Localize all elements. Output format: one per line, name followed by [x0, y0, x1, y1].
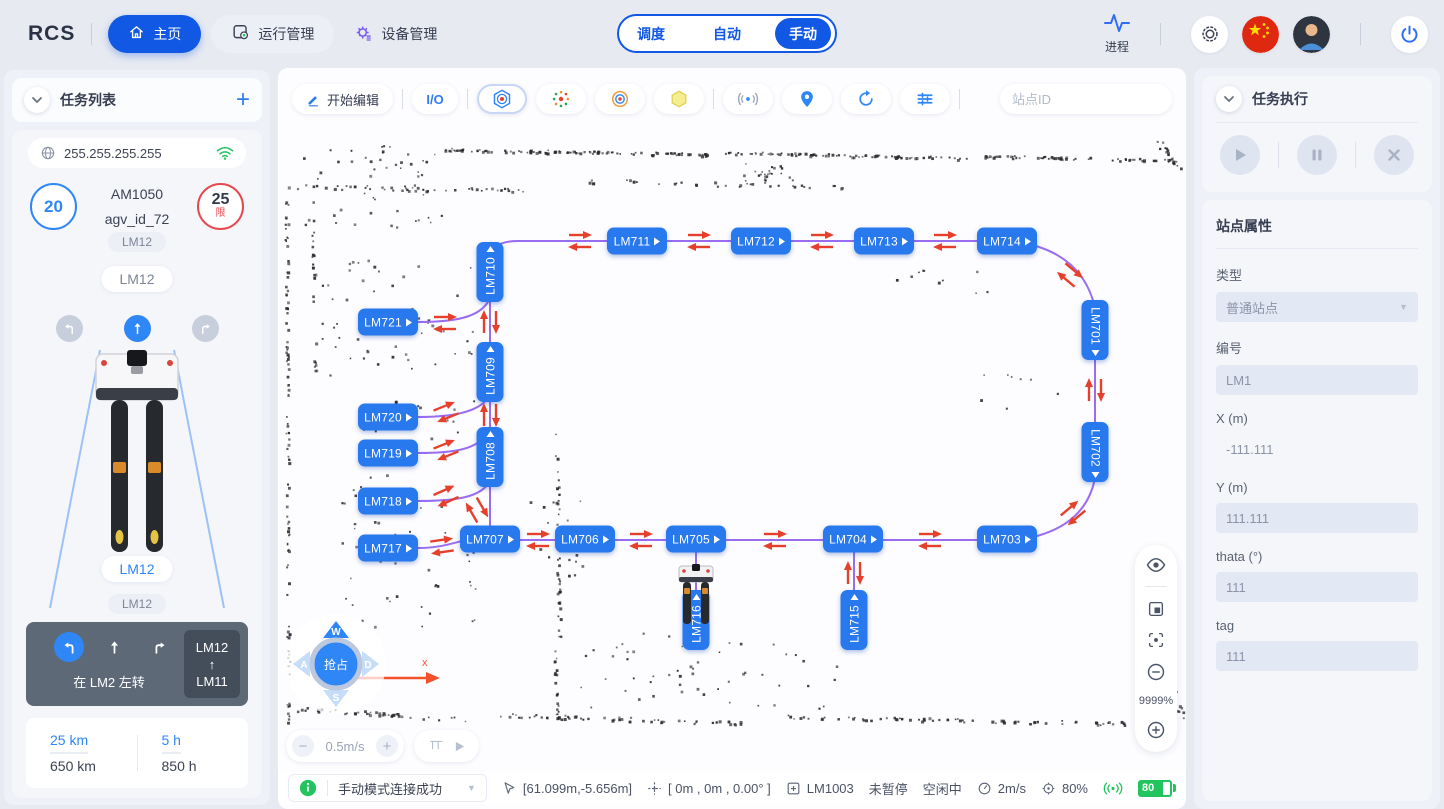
station-badge[interactable]: LM720	[358, 404, 418, 431]
station-badge[interactable]: LM702	[1082, 422, 1109, 482]
tag-label: tag	[1216, 618, 1418, 633]
battery-indicator: 80	[1138, 780, 1176, 797]
y-field[interactable]: 111.111	[1216, 503, 1418, 533]
avatar	[1293, 16, 1330, 53]
sliders-icon	[915, 89, 935, 109]
hexagon-scan-icon	[491, 88, 513, 110]
station-properties: 站点属性 类型 普通站点 ▼ 编号 LM1 X (m) -111.111 Y (…	[1202, 200, 1432, 801]
station-search-input[interactable]	[1012, 92, 1186, 107]
globe-icon	[40, 145, 56, 161]
station-badge[interactable]: LM712	[731, 228, 791, 255]
theta-label: thata (°)	[1216, 549, 1418, 564]
play-icon	[454, 741, 465, 752]
turn-indicators	[12, 315, 262, 342]
tab-manual[interactable]: 手动	[775, 18, 831, 49]
station-layer-button[interactable]	[477, 84, 527, 114]
theta-field[interactable]: 111	[1216, 572, 1418, 602]
play-task-button[interactable]	[1220, 135, 1260, 175]
station-badge[interactable]: LM711	[607, 228, 667, 255]
theme-toggle[interactable]	[1191, 16, 1228, 53]
nav-operations[interactable]: 运行管理	[211, 15, 334, 53]
user-avatar[interactable]	[1293, 16, 1330, 53]
status-bar: 手动模式连接成功 ▼ [61.099m,-5.656m] [ 0m , 0m ,…	[278, 771, 1186, 805]
collapse-button[interactable]	[24, 87, 50, 113]
station-chip: LM12	[108, 594, 166, 614]
cursor-coords: [61.099m,-5.656m]	[502, 781, 632, 796]
power-icon	[1399, 24, 1420, 45]
locate-button[interactable]	[782, 84, 832, 114]
mode-tabs: 调度 自动 手动	[617, 14, 837, 53]
x-label: X (m)	[1216, 411, 1418, 426]
agv-card: 255.255.255.255 20 AM1050 agv_id_72 25限 …	[12, 130, 262, 798]
panel-title: 任务列表	[60, 90, 226, 110]
svg-text:A: A	[300, 660, 307, 671]
map-toolbar: 开始编辑 I/O	[292, 84, 1172, 114]
manual-joystick: W A D S 抢占	[284, 612, 388, 721]
station-badge[interactable]: LM719	[358, 440, 418, 467]
speed-controls: − 0.5m/s +	[286, 730, 479, 762]
stats-card: 25 km 650 km 5 h 850 h	[26, 718, 248, 788]
zoom-in-button[interactable]	[1146, 720, 1166, 740]
chevron-down-icon: ▼	[1399, 302, 1408, 312]
task-list-panel: 任务列表 + 255.255.255.255 20 AM1050 agv_id_…	[4, 70, 270, 805]
station-pill: LM12	[101, 556, 172, 582]
sun-icon	[1200, 24, 1220, 44]
station-badge[interactable]: LM704	[823, 526, 883, 553]
signal-indicator	[1103, 781, 1123, 796]
divider	[91, 23, 92, 45]
lidar-icon	[737, 88, 759, 110]
status-message[interactable]: 手动模式连接成功 ▼	[288, 774, 487, 802]
station-badge[interactable]: LM713	[854, 228, 914, 255]
minimap-button[interactable]	[1147, 600, 1165, 618]
start-edit-button[interactable]: 开始编辑	[292, 84, 393, 114]
cancel-task-button[interactable]	[1374, 135, 1414, 175]
type-label: 类型	[1216, 265, 1418, 284]
turn-right-arrow-icon[interactable]	[144, 632, 174, 662]
hexagon-zone-icon	[668, 88, 690, 110]
io-button[interactable]: I/O	[412, 84, 458, 114]
task-execution-panel: 任务执行 站点属性 类型 普通站点 ▼ 编号 LM1 X (m) -111.11…	[1194, 68, 1440, 809]
code-label: 编号	[1216, 338, 1418, 357]
straight-icon[interactable]	[124, 315, 151, 342]
properties-title: 站点属性	[1216, 216, 1418, 249]
code-field[interactable]: LM1	[1216, 365, 1418, 395]
point-scatter-icon	[550, 88, 572, 110]
gear-icon	[354, 23, 373, 45]
hours-today: 5 h	[162, 732, 181, 754]
map-view-tools: 9999%	[1135, 545, 1177, 752]
divider	[1160, 23, 1161, 45]
position-target-icon	[1041, 781, 1056, 796]
turn-right-icon[interactable]	[192, 315, 219, 342]
stations-layer: LM711LM712LM713LM714LM710LM721LM709LM720…	[278, 68, 1186, 809]
collapse-button[interactable]	[1216, 86, 1242, 112]
station-search	[1000, 84, 1172, 114]
refresh-icon	[856, 89, 876, 109]
station-badge[interactable]: LM705	[666, 526, 726, 553]
idle-state: 空闲中	[923, 779, 962, 798]
type-select[interactable]: 普通站点 ▼	[1216, 292, 1418, 322]
circle-target-icon	[609, 88, 631, 110]
info-icon	[299, 779, 317, 797]
station-badge[interactable]: LM703	[977, 526, 1037, 553]
wifi-icon	[216, 146, 234, 160]
visibility-button[interactable]	[1146, 557, 1166, 573]
station-badge[interactable]: LM710	[477, 242, 504, 302]
svg-text:D: D	[364, 660, 371, 671]
monitor-gear-icon	[231, 23, 250, 45]
pause-state: 未暂停	[869, 779, 908, 798]
nav-devices[interactable]: 设备管理	[334, 15, 457, 53]
agv-ip-row[interactable]: 255.255.255.255	[28, 138, 246, 168]
agv-robot-marker[interactable]	[676, 564, 716, 626]
x-field[interactable]: -111.111	[1216, 434, 1418, 464]
seize-label: 抢占	[324, 657, 348, 672]
power-button[interactable]	[1391, 16, 1428, 53]
filter-settings-button[interactable]	[900, 84, 950, 114]
svg-text:x: x	[422, 657, 428, 669]
speed-increase-button[interactable]: +	[376, 735, 398, 757]
robot-pose: [ 0m , 0m , 0.00° ]	[647, 781, 771, 796]
map-panel: LM711LM712LM713LM714LM710LM721LM709LM720…	[278, 68, 1186, 809]
station-pill: LM12	[101, 266, 172, 292]
scatter-layer-button[interactable]	[536, 84, 586, 114]
pause-task-button[interactable]	[1297, 135, 1337, 175]
plus-square-icon	[786, 781, 801, 796]
waveform-icon	[1104, 13, 1130, 36]
progress-readout: 80%	[1041, 781, 1088, 796]
station-badge[interactable]: LM708	[477, 427, 504, 487]
manual-speed-value: 0.5m/s	[322, 739, 368, 754]
turn-left-active-icon[interactable]	[54, 632, 84, 662]
nav-instruction-panel: 在 LM2 左转 LM12↑LM11	[26, 622, 248, 706]
lidar-button[interactable]	[723, 84, 773, 114]
station-chip: LM12	[108, 232, 166, 252]
station-badge[interactable]: LM718	[358, 488, 418, 515]
station-badge[interactable]: LM707	[460, 526, 520, 553]
agv-ip: 255.255.255.255	[64, 146, 208, 161]
zoom-out-button[interactable]	[1146, 662, 1166, 682]
cursor-icon	[502, 781, 517, 796]
app-logo: RCS	[28, 22, 75, 46]
top-bar: RCS 主页 运行管理 设备管理 调度 自动 手动 进程	[0, 0, 1444, 68]
y-label: Y (m)	[1216, 480, 1418, 495]
tab-auto[interactable]: 自动	[699, 18, 755, 49]
pencil-icon	[306, 92, 321, 107]
crosshair-icon	[647, 781, 662, 796]
route-box: LM12↑LM11	[184, 630, 240, 698]
station-badge[interactable]: LM715	[841, 590, 868, 650]
target-layer-button[interactable]	[595, 84, 645, 114]
station-badge[interactable]: LM717	[358, 535, 418, 562]
language-flag[interactable]	[1242, 16, 1279, 53]
current-station: LM1003	[786, 781, 854, 796]
panel-title: 任务执行	[1252, 89, 1418, 109]
zoom-level: 9999%	[1139, 695, 1173, 707]
zone-layer-button[interactable]	[654, 84, 704, 114]
location-pin-icon	[797, 89, 817, 109]
hours-total: 850 h	[162, 758, 249, 774]
station-badge[interactable]: LM721	[358, 309, 418, 336]
divider	[1360, 23, 1361, 45]
add-task-button[interactable]: +	[236, 90, 250, 110]
svg-text:S: S	[333, 693, 340, 704]
station-badge[interactable]: LM706	[555, 526, 615, 553]
station-badge[interactable]: LM709	[477, 342, 504, 402]
home-icon	[128, 24, 145, 44]
speed-readout: 2m/s	[977, 781, 1026, 796]
odometer-today: 25 km	[50, 732, 88, 754]
refresh-button[interactable]	[841, 84, 891, 114]
fork-icon	[428, 738, 444, 754]
manual-speed-control: − 0.5m/s +	[286, 730, 404, 762]
china-flag-icon	[1242, 16, 1279, 53]
nav-hint: 在 LM2 左转	[26, 672, 192, 691]
turn-left-icon[interactable]	[56, 315, 83, 342]
speed-limit-ring: 25限	[197, 183, 244, 230]
nav-home[interactable]: 主页	[108, 15, 201, 53]
straight-arrow-icon[interactable]	[99, 632, 129, 662]
tab-dispatch[interactable]: 调度	[623, 18, 679, 49]
center-focus-button[interactable]	[1147, 631, 1165, 649]
station-badge[interactable]: LM701	[1082, 300, 1109, 360]
svg-text:W: W	[331, 627, 341, 638]
speed-decrease-button[interactable]: −	[292, 735, 314, 757]
process-button[interactable]: 进程	[1104, 13, 1130, 55]
fork-control[interactable]	[414, 730, 479, 762]
odometer-total: 650 km	[50, 758, 137, 774]
station-badge[interactable]: LM714	[977, 228, 1037, 255]
speedometer-icon	[977, 781, 992, 796]
dropdown-caret: ▼	[467, 783, 476, 793]
tag-field[interactable]: 111	[1216, 641, 1418, 671]
